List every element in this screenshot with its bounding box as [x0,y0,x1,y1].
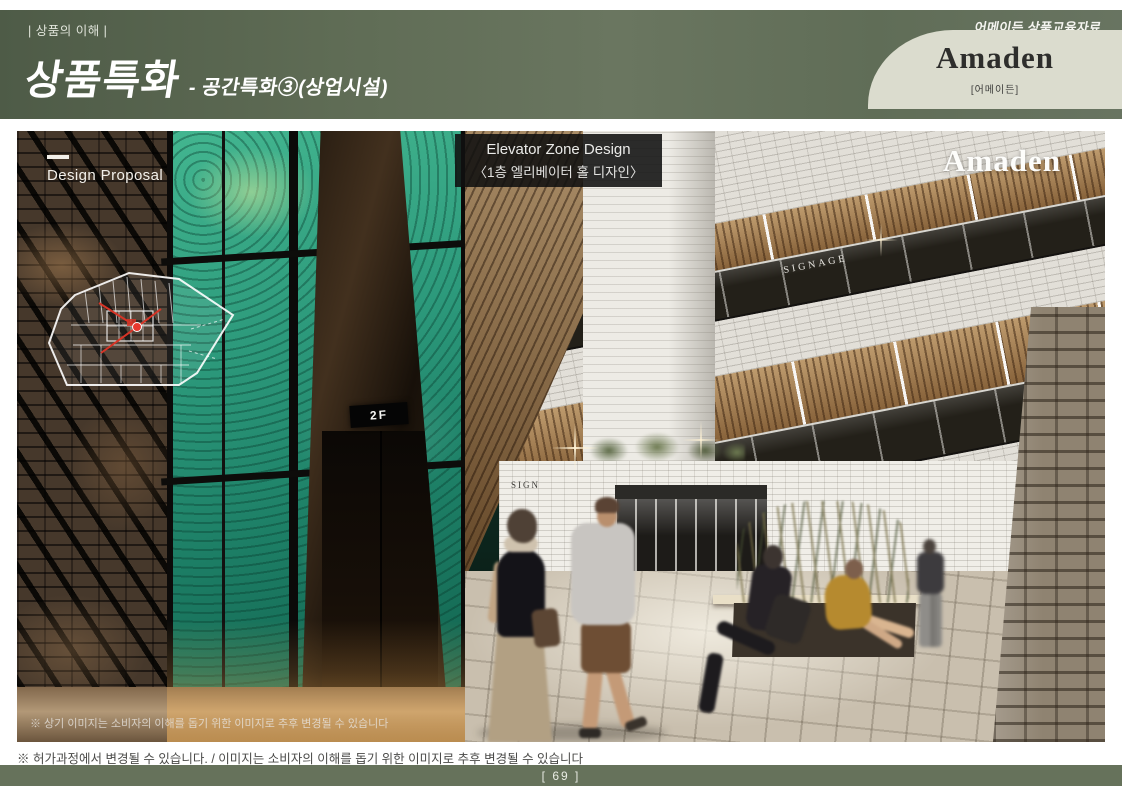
hero-rendering: 2F SIGN [17,131,1105,742]
brand-plate: Amaden [어메이든] [868,30,1122,109]
design-proposal-caption: Design Proposal [47,155,163,184]
storefront-sign-text: SIGN [511,480,540,490]
elevator-floor-sign-text: 2F [370,407,389,422]
lens-flare [864,239,898,240]
page-subtitle: - 공간특화③(상업시설) [187,77,390,99]
elevator-floor-sign: 2F [349,402,408,428]
title-row: 상품특화- 공간특화③(상업시설) [21,46,395,106]
caption-dash [47,155,69,159]
hero-brand-watermark: Amaden [943,143,1061,179]
balcony-plants [585,429,745,465]
design-proposal-text: Design Proposal [47,167,163,184]
elevator-zone-label-kr: 〈1층 엘리베이터 홀 디자인〉 [474,161,644,181]
section-label: | 상품의 이해 | [28,20,107,39]
page-title: 상품특화 [22,57,184,103]
floorplan-diagram [41,269,241,391]
page-number: [ 69 ] [542,769,581,783]
walking-man-foreground [555,497,651,742]
footer-bar: [ 69 ] [0,765,1122,786]
lens-flare [682,439,720,441]
elevator-zone-label-en: Elevator Zone Design [486,141,630,158]
walking-person-background [911,539,951,649]
lens-flare [551,447,599,449]
elevator-zone-label: Elevator Zone Design 〈1층 엘리베이터 홀 디자인〉 [455,134,662,187]
walking-woman-foreground [487,509,565,742]
brand-logo: Amaden [868,40,1122,76]
brand-korean-name: [어메이든] [868,81,1122,96]
image-inner-disclaimer: ※ 상기 이미지는 소비자의 이해를 돕기 위한 이미지로 추후 변경될 수 있… [30,715,388,731]
slide-page: | 상품의 이해 | 어메이든 상품교육자료 상품특화- 공간특화③(상업시설)… [0,0,1122,793]
